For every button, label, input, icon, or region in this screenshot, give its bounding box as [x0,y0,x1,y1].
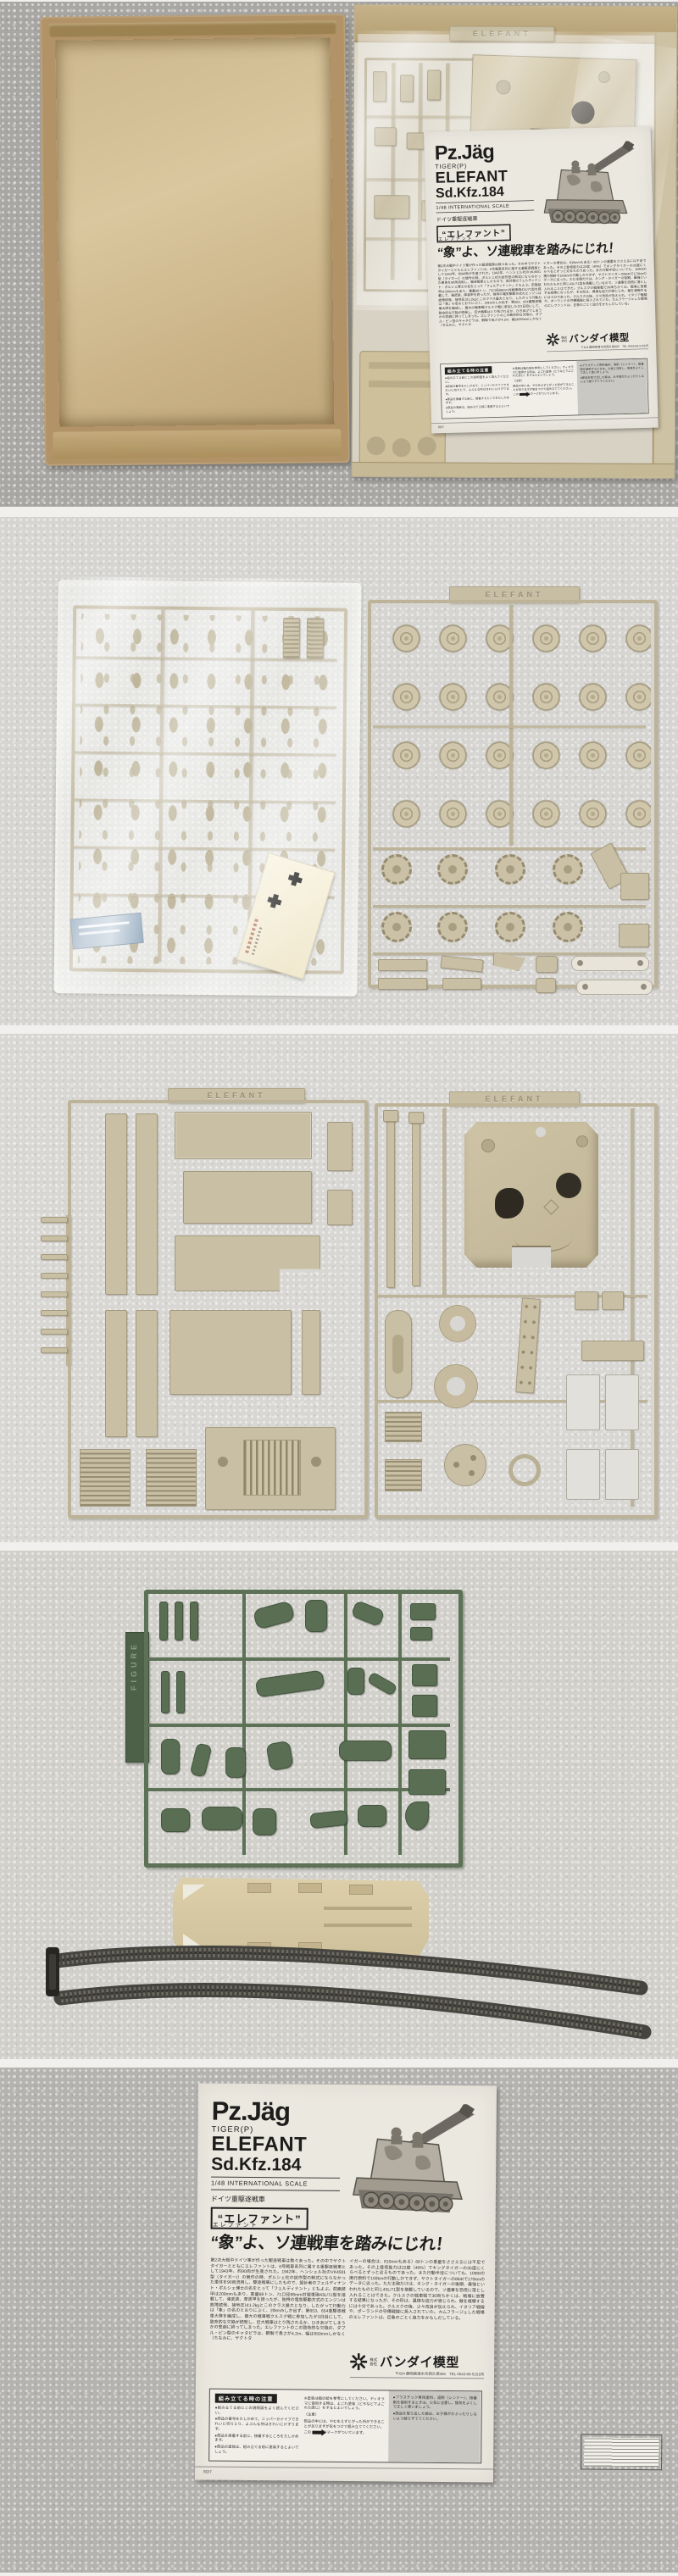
maker-prefix: 株式 会社 [561,336,567,342]
stowage-box-part [412,1695,437,1717]
assembly-notes-title: 組み立てる時の注意 [445,366,492,375]
note-item: ●組み立てる前にこの説明図をよく読んでください。 [445,375,508,384]
headline: “象”よ、ソ連戦車を踏みにじれ！ [209,2229,492,2256]
footer-code: 80/7 [438,425,445,430]
sprue-tab: ELEFANT [449,26,554,42]
maker-address: 〒424 静岡県清水市西久保305 TEL 0543-66-5151㈹ [350,2371,484,2379]
figure-part [161,1808,190,1832]
sprue-runner [373,725,646,728]
box-lid [40,14,350,466]
sprue-part [375,127,397,146]
sprocket-wheel [381,854,412,885]
suspension-arm [378,978,427,990]
muzzle-brake [383,1110,398,1122]
assembly-notes-box: 組み立てる時の注意 ●組み立てる前にこの説明図をよく読んでください。 ●部品の番… [208,2389,482,2464]
figure-part-pair [202,1807,242,1830]
pin-part [41,1347,68,1353]
grille-part [307,618,325,658]
note-item: ●部品の番号をたしかめて、ニッパーかナイフできれいに切りとり、よぶんな所はきれい… [445,383,509,396]
disc-hole [469,1470,475,1476]
disc-hole [470,1455,476,1461]
instruction-sheet-in-box: Pz.Jäg TIGER(P) ELEFANT Sd.Kfz.184 1/48 … [424,126,659,434]
small-box-part [602,1291,624,1310]
hatch-ring [434,1364,478,1408]
pin-part [41,1217,68,1223]
arrow-text-post: のマークがついています。 [323,2430,366,2434]
sprue-runner [148,1788,450,1791]
sprocket-wheel [437,912,468,942]
sprue-part [374,195,409,219]
disc-hole [453,1462,459,1468]
notes-column-2: ※塗装は箱の絵を参考にしてください。ディオラマに使用する時は、よごれ塗装（どろな… [513,365,575,397]
footer-code: 80/7 [203,2470,212,2475]
sprue-part [373,71,386,102]
note-item: ●部品の塗装は、組み立てる前に塗装するとよいでしょう。 [214,2445,298,2455]
sprue-runner [148,1657,450,1661]
small-box-part [575,1291,598,1310]
photo-instruction-sheet: Pz.Jäg TIGER(P) ELEFANT Sd.Kfz.184 1/48 … [0,2068,678,2573]
slip-line [79,921,130,929]
track-link-part [576,980,653,995]
barrel-comb [41,1215,71,1368]
detail-diamond [543,1199,559,1214]
small-part [327,1122,353,1171]
sprue-runner [442,1108,446,1295]
notes-column-1: ●組み立てる前にこの説明図をよく読んでください。 ●部品の番号をたしかめて、ニッ… [214,2406,299,2457]
kit-title-block: Pz.Jäg TIGER(P) ELEFANT Sd.Kfz.184 1/48 … [211,2099,341,2230]
note-item: ●部品の番号をたしかめて、ニッパーかナイフできれいに切りとり、よぶんな所はきれい… [214,2417,298,2432]
small-hole [536,1127,546,1137]
wheel-detail [392,438,411,457]
pin-part [41,1310,68,1316]
stowage-box-part [408,1730,446,1759]
drum-part [536,956,558,973]
note-item: ●部品を接着する前に、接着するところをたしかめます。 [214,2433,298,2443]
note-item: ●部品の塗装は、組み立てる前に塗装するとよいでしょう。 [446,404,509,414]
arrow-text-post: のマークがついています。 [528,391,561,396]
vinyl-tracks [42,1932,656,2052]
box-lid-far-wall [48,20,336,37]
hatch-detail [496,80,511,95]
figure-sprue: FIGURE [144,1590,461,1866]
body-text-column-1: 第2次大戦中ドイツ軍が作った駆逐戦車は数々あった。その中でヤクトタイガーとともに… [209,2258,346,2388]
thin-bar-part [302,1310,320,1395]
wheel-detail [367,436,386,455]
figure-part-hook [405,1802,429,1830]
plastic-bag [53,580,361,997]
gun-barrel [386,1117,395,1288]
pin-part [41,1329,68,1335]
long-box-part [581,1341,644,1361]
photo-open-box: ELEFANT Pz.Jäg [0,2,678,507]
stowage-box-part [410,1603,436,1620]
track-link-part [571,956,649,971]
note-item: 部品の中には、やむをえずとがった所ができることがありますが気をつけて組み立ててく… [303,2418,384,2429]
photo-bagged-sprues: ELEFANT [0,517,678,1025]
notes-column-1: ●組み立てる前にこの説明図をよく読んでください。 ●部品の番号をたしかめて、ニッ… [445,375,509,414]
fender-strip [136,1113,158,1295]
note-item: ●プラスチック専用塗料、溶剤（シンナー）、接着剤を使用するときは、火気に注意し、… [393,2395,477,2410]
figure-part [253,1808,276,1835]
balkenkreuz-decal [286,870,303,887]
pin-part [41,1273,68,1279]
suspension-arm [442,978,481,990]
sprue-part [400,75,414,102]
photo-figure-sprue-hull-tracks: FIGURE [0,1551,678,2059]
pill-part [385,1310,412,1398]
small-part [327,1190,353,1225]
hatch-detail [598,71,610,83]
note-item: ※塗装は箱の絵を参考にしてください。ディオラマに使用する時は、よごれ塗装（どろな… [304,2396,385,2412]
figure-part-rod [175,1602,183,1641]
pin-part [41,1254,68,1260]
suspension-bogie [620,873,649,900]
maker-logo: 株式 会社 バンダイ模型 [350,2352,459,2371]
suspension-bogie [619,924,649,947]
drum-part [536,978,556,993]
kit-name: ELEFANT [211,2135,340,2156]
sprocket-wheel [381,912,412,942]
stowage-box-part [408,1769,446,1795]
arrow-text-pre: この [303,2430,311,2434]
maker-prefix-line2: 会社 [561,339,567,342]
body-text-column-2: イガーの場合は、810mmもある）68トンの重量をささえるには不足であった。その… [543,259,648,331]
hatch-ring [439,1305,476,1342]
figure-part-rod [176,1671,185,1713]
notes-column-3: ●プラスチック専用塗料、溶剤（シンナー）、接着剤を使用するときは、火気に注意し、… [580,362,644,385]
deck-hole [311,1457,321,1467]
fender-strip [105,1310,127,1437]
maker-name: バンダイ模型 [380,2352,459,2371]
maker-prefix-line2: 会社 [370,2362,377,2366]
grille-plate [80,1449,131,1507]
wheel-detail [418,436,436,455]
divider [211,2190,340,2191]
tank-illustration [333,2103,486,2222]
sprocket-wheel [495,854,525,885]
sprocket-wheel [553,854,583,885]
hull-plates-sprue: ELEFANT [68,1088,368,1518]
deck-hole [218,1457,228,1467]
figure-part-rod [190,1602,198,1641]
sprue-runner [366,115,471,119]
pill-slot [392,1335,403,1374]
hull-latch [298,1883,322,1893]
hull-rib [369,380,435,387]
note-item: ●部品を取り出した袋は、お子様がかぶったりしないよう破りすててください。 [393,2412,477,2422]
sprue-runner [373,905,646,908]
arrow-text-pre: この [513,392,519,396]
body-text-column-2: イガーの場合は、810mmもある）68トンの重量をささえるには不足であった。その… [348,2259,485,2351]
silver-part [566,1374,600,1430]
sprue-runner [373,952,646,955]
fender-strip [136,1310,158,1437]
grille-part [283,618,301,658]
detail-disc [481,1139,495,1152]
fender-strip [105,1113,127,1295]
figure-part-torso [347,1668,364,1695]
casemate-superstructure [464,1122,598,1268]
figure-part-torso [305,1600,327,1632]
stowage-box-part [412,1664,437,1686]
notes-column-3: ●プラスチック専用塗料、溶剤（シンナー）、接着剤を使用するときは、火気に注意し、… [393,2395,477,2423]
scale-line: 1/48 INTERNATIONAL SCALE [436,203,534,211]
stowage-box-part [410,1627,432,1641]
note-item: ●プラスチック専用塗料、溶剤（シンナー）、接着剤を使用するときは、火気に注意し、… [580,362,644,375]
notes-column-2: ※塗装は箱の絵を参考にしてください。ディオラマに使用する時は、よごれ塗装（どろな… [303,2396,384,2438]
divider [211,2177,340,2179]
photo-collage: ELEFANT Pz.Jäg [0,0,678,2576]
figure-tab-label: FIGURE [130,1641,138,1690]
footer-rule [195,2466,493,2469]
kit-designation: Sd.Kfz.184 [436,183,534,200]
fine-print-box [581,2434,662,2470]
note-item: 部品の中には、やむをえずとがった所ができることがありますが気をつけて組み立ててく… [513,383,574,392]
bottom-notch [512,1246,551,1269]
sprocket-wheel [553,912,583,942]
instruction-sheet: Pz.Jäg TIGER(P) ELEFANT Sd.Kfz.184 1/48 … [424,126,659,434]
hole [495,1188,524,1219]
assembly-notes-title: 組み立てる時の注意 [215,2394,277,2404]
sprocket-wheel [495,912,525,942]
note-item: ●部品を取り出した袋は、お子様がかぶったりしないよう破りすててください。 [581,375,644,384]
grille-plate [385,1412,422,1442]
detail-disc [576,1135,588,1147]
sprue-runner [631,1108,634,1507]
grille-plate [385,1459,422,1491]
photo-tan-sprues: ELEFANT [0,1034,678,1542]
note-item: 〈注意〉 [304,2412,385,2418]
instruction-sheet-wrapper: Pz.Jäg TIGER(P) ELEFANT Sd.Kfz.184 1/48 … [195,2083,497,2482]
maker-prefix: 株式 会社 [370,2357,377,2366]
arrow-mark-icon [312,2431,322,2434]
tank-illustration [527,141,645,232]
divider [436,210,535,214]
engine-deck [205,1427,336,1510]
grille-plate [146,1449,197,1507]
note-item-arrow: こののマークがついています。 [513,391,574,397]
figure-part-torso [225,1747,246,1778]
hull-plate [183,1171,312,1224]
figure-part-torso [265,1740,293,1771]
wheel-sprue: ELEFANT [368,586,658,1000]
hull-ridge [324,1907,412,1910]
ring-part [508,1454,541,1486]
kit-title-block: Pz.Jäg TIGER(P) ELEFANT Sd.Kfz.184 1/48 … [435,141,536,242]
arrow-mark-icon [520,393,527,396]
sprue-part [427,69,441,100]
hole [556,1173,581,1198]
kit-designation: Sd.Kfz.184 [211,2155,340,2175]
box-lid-near-wall [53,429,341,459]
note-item: ※塗装は箱の絵を参考にしてください。ディオラマに使用する時は、よごれ塗装（どろな… [513,365,575,378]
assembly-notes-box: 組み立てる時の注意 ●組み立てる前にこの説明図をよく読んでください。 ●部品の番… [440,358,648,419]
gun-barrel [412,1119,420,1286]
maker-name: バンダイ模型 [569,330,630,346]
silver-part [605,1449,639,1500]
note-item-arrow: こののマークがついています。 [303,2430,384,2436]
louver-panel [243,1440,301,1496]
figure-part-standing-pair [339,1740,392,1761]
scale-line: 1/48 INTERNATIONAL SCALE [211,2179,340,2188]
box-lid-interior [56,37,335,426]
instruction-sheet: Pz.Jäg TIGER(P) ELEFANT Sd.Kfz.184 1/48 … [195,2083,497,2482]
pin-part [41,1291,68,1297]
balkenkreuz-decal [266,892,283,909]
kit-title: Pz.Jäg [212,2099,341,2125]
hull-latch [349,1885,373,1895]
hull-rib [369,362,435,369]
muzzle-brake [408,1112,424,1124]
maker-logo: 株式 会社 バンダイ模型 [547,330,630,347]
figure-part-rod [161,1671,169,1713]
pin-part [41,1235,68,1241]
note-item: ●組み立てる前にこの説明図をよく読んでください。 [215,2406,299,2416]
suspension-arm [378,959,427,971]
casemate-sprue: ELEFANT [375,1091,658,1518]
hull-white-triangle [183,1885,205,1900]
bandai-logo-mark [547,332,560,346]
body-text-column-1: 第2次大戦中ドイツ軍が作った駆逐戦車は数々あった。その中でヤクトタイガーとともに… [437,262,543,363]
note-item: ●部品を接着する前に、接着するところをたしかめます。 [446,396,509,405]
hull-ridge [324,1924,412,1927]
figure-part-legs [161,1739,180,1774]
silver-part [605,1374,639,1430]
maker-prefix-line1: 株式 [370,2357,377,2362]
sprue-runner [148,1724,450,1727]
sprocket-wheel [437,854,468,885]
hull-latch [247,1883,271,1893]
bandai-logo-mark [350,2353,367,2370]
slip-line [79,929,119,935]
kit-title: Pz.Jäg [435,141,533,163]
figure-part-rod [159,1602,168,1641]
periscope-hole [571,101,595,125]
figure-part [358,1805,386,1827]
box-edge-bottom [353,462,675,478]
hull-plate [175,1112,312,1159]
hatch-disc [444,1444,486,1486]
silver-part [566,1449,600,1500]
hull-plate [169,1310,292,1395]
